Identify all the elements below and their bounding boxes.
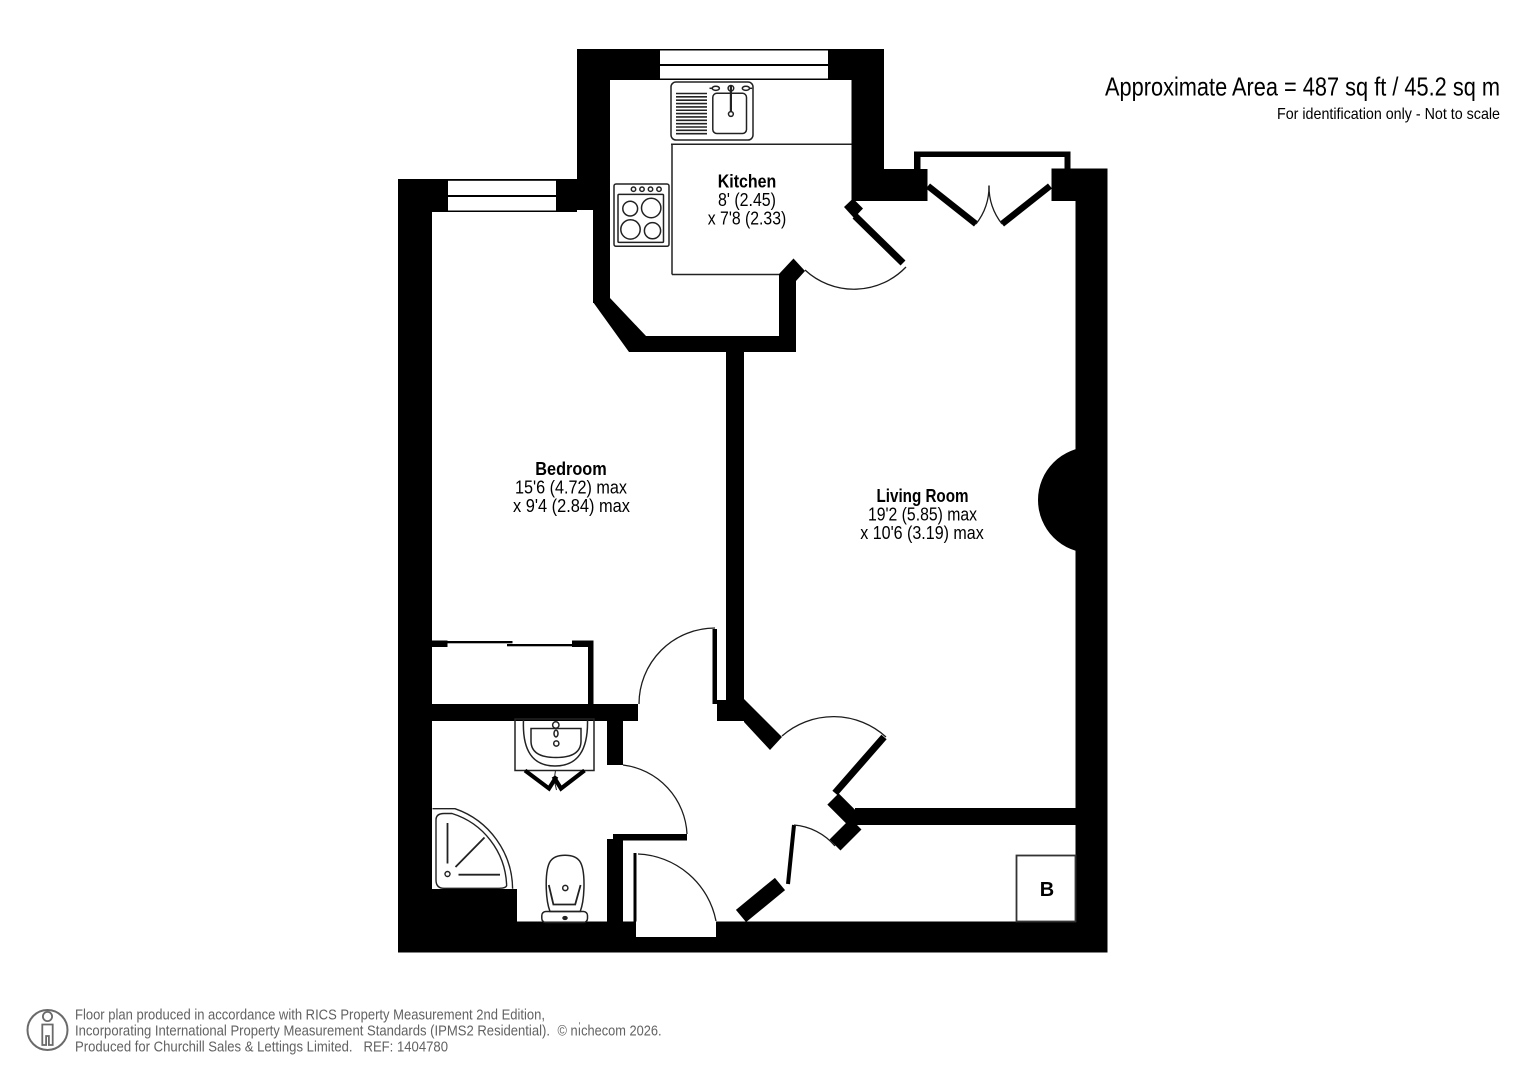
svg-text:x 10'6 (3.19) max: x 10'6 (3.19) max xyxy=(860,523,984,543)
svg-text:x 7'8 (2.33): x 7'8 (2.33) xyxy=(708,209,787,229)
svg-text:Approximate Area = 487 sq ft /: Approximate Area = 487 sq ft / 45.2 sq m xyxy=(1105,72,1500,102)
svg-text:Kitchen: Kitchen xyxy=(718,172,777,192)
svg-text:15'6 (4.72) max: 15'6 (4.72) max xyxy=(515,478,627,498)
svg-text:Incorporating International Pr: Incorporating International Property Mea… xyxy=(75,1024,550,1040)
svg-text:B: B xyxy=(1040,879,1054,901)
svg-text:Bedroom: Bedroom xyxy=(535,459,607,479)
svg-text:For identification only - Not: For identification only - Not to scale xyxy=(1277,106,1500,123)
svg-text:8' (2.45): 8' (2.45) xyxy=(718,190,776,210)
svg-text:© nı̍checom 2026.: © nı̍checom 2026. xyxy=(558,1022,662,1040)
svg-text:x 9'4 (2.84) max: x 9'4 (2.84) max xyxy=(513,496,630,516)
svg-text:Living Room: Living Room xyxy=(877,486,969,506)
svg-text:19'2 (5.85) max: 19'2 (5.85) max xyxy=(868,505,977,525)
svg-text:Produced for Churchill Sales &: Produced for Churchill Sales & Lettings … xyxy=(75,1040,448,1056)
svg-text:Floor plan produced in accorda: Floor plan produced in accordance with R… xyxy=(75,1008,545,1024)
